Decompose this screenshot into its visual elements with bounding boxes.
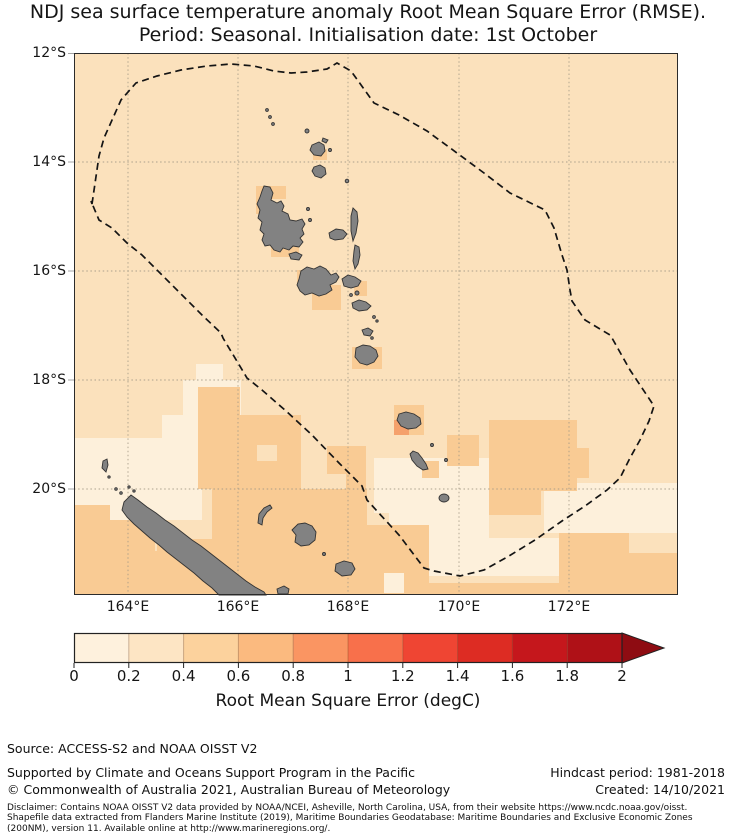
cb-tick-14: 1.4 (436, 667, 480, 685)
lon-tick-170e: 170°E (427, 599, 491, 615)
cb-tick-16: 1.6 (490, 667, 534, 685)
colorbar-segment (512, 633, 567, 663)
cb-tick-12: 1.2 (381, 667, 425, 685)
colorbar-segment (567, 633, 622, 663)
chart-title-line1: NDJ sea surface temperature anomaly Root… (0, 1, 736, 24)
colorbar-arrow (622, 633, 664, 663)
colorbar-segment (403, 633, 458, 663)
lat-tick-18s: 18°S (0, 372, 66, 388)
cb-tick-2: 2 (600, 667, 644, 685)
colorbar-segment (238, 633, 293, 663)
lat-tick-14s: 14°S (0, 154, 66, 170)
source-text: Source: ACCESS-S2 and NOAA OISST V2 (7, 741, 257, 756)
lat-tick-16s: 16°S (0, 263, 66, 279)
island-aneityum (439, 494, 449, 502)
disclaimer-line1: Disclaimer: Contains NOAA OISST V2 data … (7, 803, 731, 813)
chart-title: NDJ sea surface temperature anomaly Root… (0, 1, 736, 46)
disclaimer-line3: (200NM), version 11. Available online at… (7, 824, 731, 834)
disclaimer-line2: Shapefile data extracted from Flanders M… (7, 813, 731, 823)
colorbar-segment (458, 633, 513, 663)
disclaimer-text: Disclaimer: Contains NOAA OISST V2 data … (7, 803, 731, 834)
lon-tick-166e: 166°E (206, 599, 270, 615)
island-lifou (292, 523, 316, 546)
map-canvas (74, 53, 678, 595)
rmse-base-hole (257, 445, 277, 461)
lat-tick-20s: 20°S (0, 481, 66, 497)
figure: NDJ sea surface temperature anomaly Root… (0, 0, 736, 839)
cb-tick-0: 0 (52, 667, 96, 685)
cb-tick-18: 1.8 (545, 667, 589, 685)
colorbar-segment (184, 633, 239, 663)
cb-tick-08: 0.8 (271, 667, 315, 685)
rmse-low-notch (384, 573, 404, 593)
created-text: Created: 14/10/2021 (595, 782, 725, 797)
colorbar-segment (293, 633, 348, 663)
colorbar-label: Root Mean Square Error (degC) (198, 691, 498, 711)
lon-tick-172e: 172°E (537, 599, 601, 615)
cb-tick-06: 0.6 (216, 667, 260, 685)
colorbar-segment (129, 633, 184, 663)
cb-tick-04: 0.4 (162, 667, 206, 685)
cb-tick-1: 1 (326, 667, 370, 685)
lon-tick-168e: 168°E (316, 599, 380, 615)
copyright-text: © Commonwealth of Australia 2021, Austra… (7, 782, 450, 797)
lon-tick-164e: 164°E (96, 599, 160, 615)
hindcast-text: Hindcast period: 1981-2018 (550, 765, 725, 780)
lat-tick-12s: 12°S (0, 45, 66, 61)
chart-title-line2: Period: Seasonal. Initialisation date: 1… (0, 24, 736, 47)
supported-text: Supported by Climate and Oceans Support … (7, 765, 415, 780)
cb-tick-02: 0.2 (107, 667, 151, 685)
colorbar-segment (74, 633, 129, 663)
colorbar-segment (348, 633, 403, 663)
